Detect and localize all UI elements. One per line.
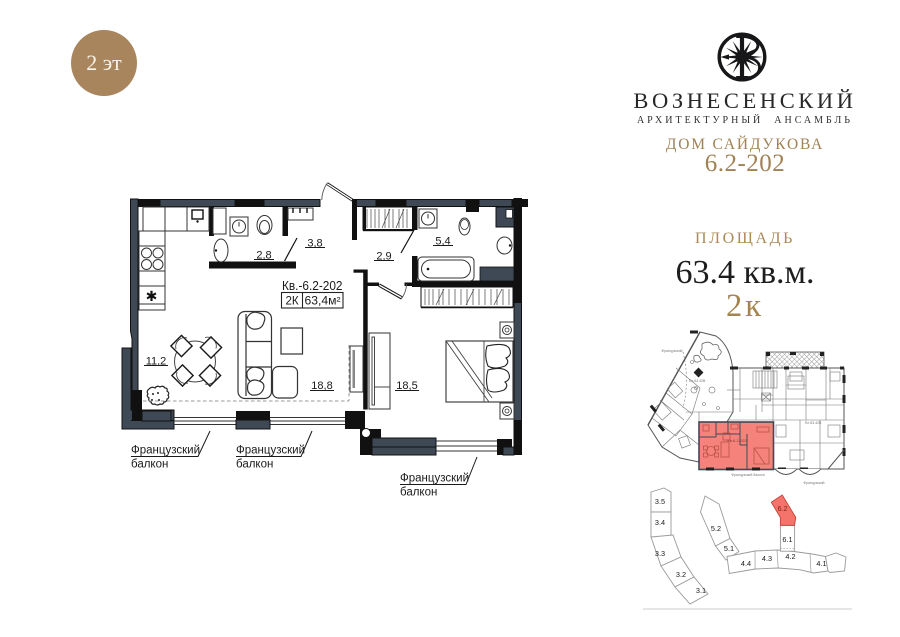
svg-text:3.4: 3.4 [655, 518, 665, 527]
svg-text:балкон: балкон [131, 459, 168, 471]
svg-text:63,4м²: 63,4м² [305, 296, 341, 308]
svg-text:5.2: 5.2 [711, 524, 721, 533]
svg-text:5.1: 5.1 [724, 544, 734, 553]
svg-text:3.1: 3.1 [696, 586, 706, 595]
svg-text:3.5: 3.5 [655, 497, 665, 506]
svg-text:4.2: 4.2 [785, 552, 795, 561]
svg-text:3.3: 3.3 [655, 549, 665, 558]
svg-text:Французский балкон: Французский балкон [731, 473, 764, 477]
svg-text:4.3: 4.3 [762, 554, 772, 563]
svg-text:Французский: Французский [400, 473, 469, 485]
svg-text:Французский: Французский [662, 349, 683, 353]
svg-text:балкон: балкон [236, 459, 273, 471]
svg-text:Французский: Французский [131, 445, 200, 457]
svg-text:4.4: 4.4 [741, 559, 751, 568]
svg-text:Пл.63.42В: Пл.63.42В [689, 379, 706, 383]
svg-text:6.1: 6.1 [782, 535, 792, 544]
svg-text:Кв.-6.2-202: Кв.-6.2-202 [282, 278, 343, 293]
svg-text:Пл.63.42В: Пл.63.42В [805, 421, 822, 425]
svg-text:4.1: 4.1 [816, 559, 826, 568]
svg-text:✱: ✱ [146, 288, 158, 304]
svg-text:Кв.6.2-202: Кв.6.2-202 [727, 438, 747, 443]
svg-text:2К: 2К [285, 296, 298, 308]
svg-text:Французский: Французский [236, 445, 305, 457]
svg-text:балкон: балкон [400, 487, 437, 499]
svg-text:3.2: 3.2 [676, 570, 686, 579]
svg-text:6.2: 6.2 [778, 506, 788, 513]
